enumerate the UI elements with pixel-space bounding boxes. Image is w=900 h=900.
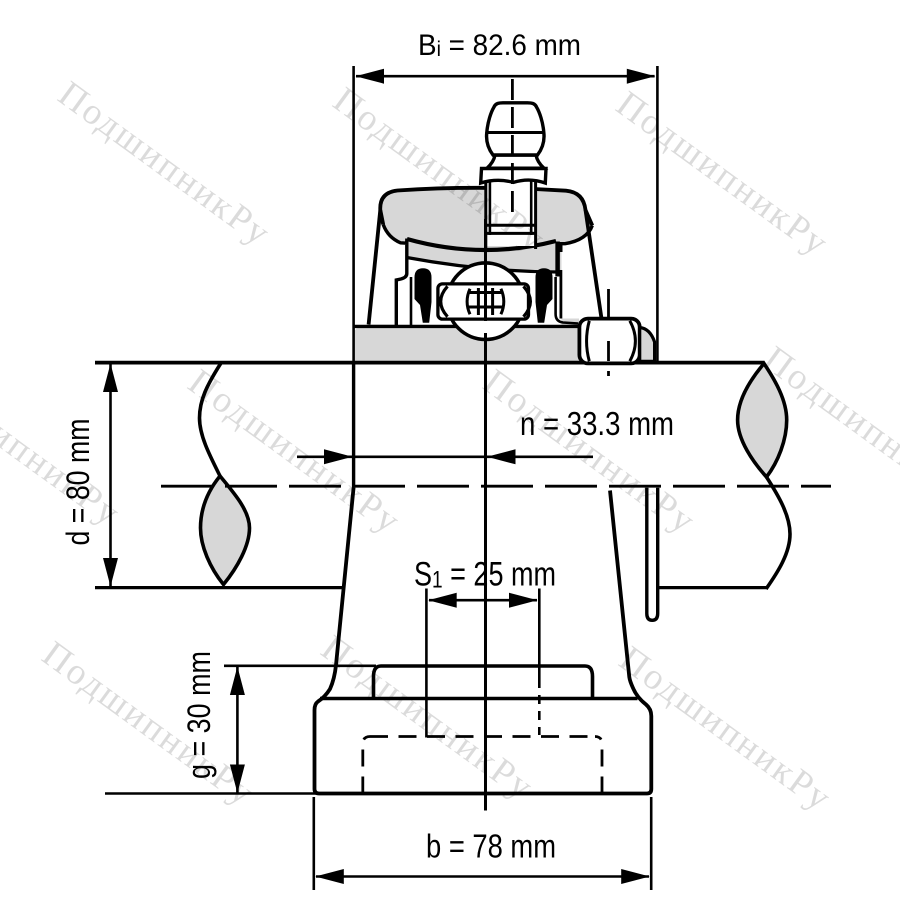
svg-text:S1 = 25 mm: S1 = 25 mm [414,555,556,593]
svg-text:Bi = 82.6 mm: Bi = 82.6 mm [418,29,581,62]
svg-text:ПодшипникРу: ПодшипникРу [51,74,278,254]
svg-text:ПодшипникРу: ПодшипникРу [35,634,262,814]
svg-text:b = 78 mm: b = 78 mm [426,828,556,865]
svg-text:ПодшипникРу: ПодшипникРу [609,84,836,264]
